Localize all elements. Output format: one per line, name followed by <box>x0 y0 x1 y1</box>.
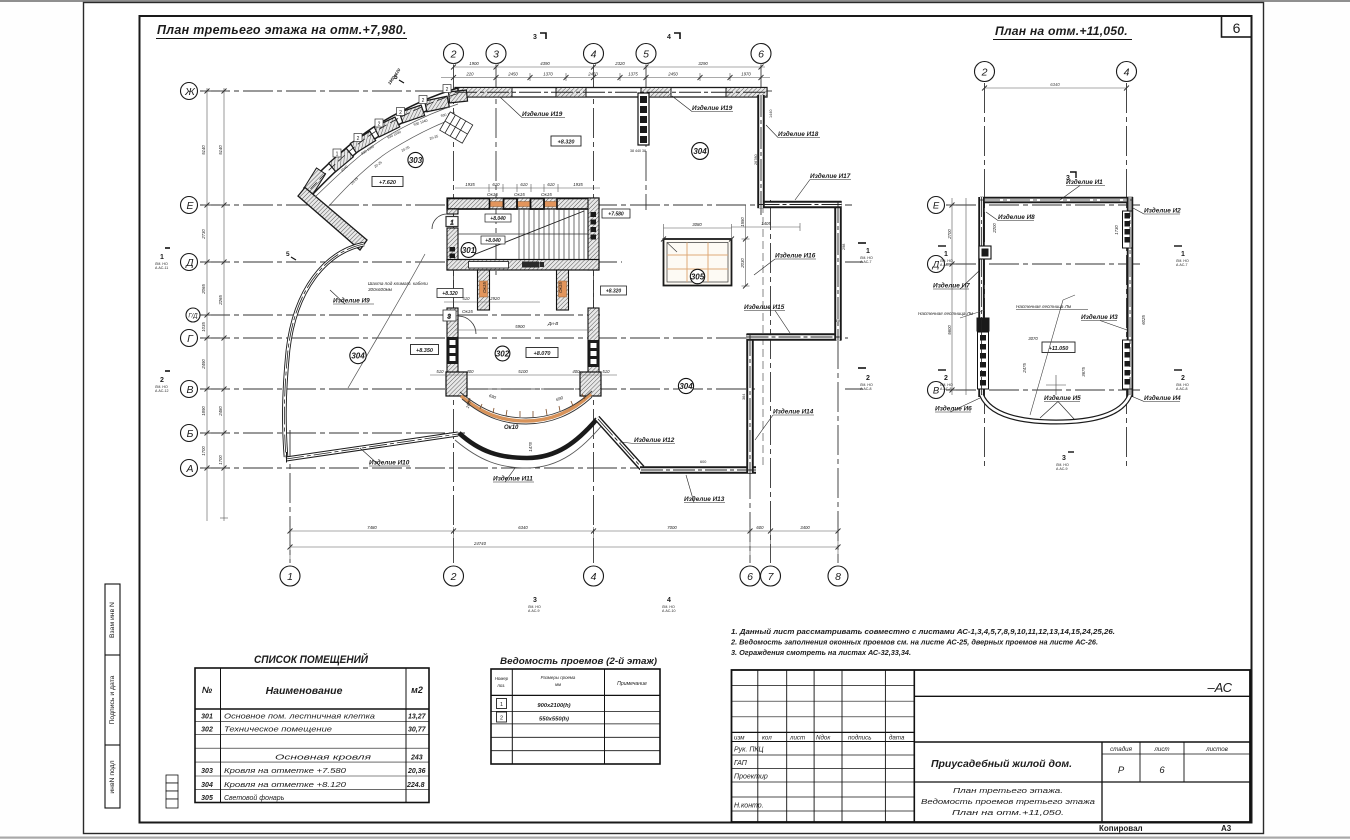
svg-text:900х2100(h): 900х2100(h) <box>537 703 570 709</box>
svg-text:6: 6 <box>758 49 764 61</box>
svg-text:Н.контр.: Н.контр. <box>734 803 764 810</box>
svg-text:3: 3 <box>533 34 537 41</box>
svg-text:1478: 1478 <box>528 442 533 452</box>
svg-text:400: 400 <box>572 369 580 374</box>
svg-text:400: 400 <box>466 369 474 374</box>
svg-text:+7.580: +7.580 <box>608 212 624 218</box>
svg-text:2: 2 <box>500 716 503 722</box>
svg-text:1: 1 <box>160 254 164 261</box>
svg-text:Проектир: Проектир <box>734 774 768 781</box>
svg-text:510: 510 <box>462 296 470 301</box>
svg-text:2: 2 <box>160 377 164 384</box>
svg-text:3: 3 <box>1066 175 1070 182</box>
svg-text:Д: Д <box>932 260 940 271</box>
svg-text:350: 350 <box>835 319 841 323</box>
svg-text:А: А <box>185 463 193 475</box>
svg-text:4: 4 <box>667 597 671 604</box>
svg-text:8: 8 <box>835 571 841 583</box>
svg-text:А АС-10: А АС-10 <box>662 609 676 613</box>
svg-text:1. Данный лист рассматривать с: 1. Данный лист рассматривать совместно с… <box>731 627 1115 636</box>
svg-text:1375: 1375 <box>628 72 638 77</box>
svg-text:1900: 1900 <box>469 61 479 66</box>
svg-text:298: 298 <box>842 244 846 250</box>
svg-text:2450: 2450 <box>507 72 518 77</box>
svg-text:1730: 1730 <box>1114 225 1119 235</box>
svg-text:5100: 5100 <box>518 369 528 374</box>
svg-text:600: 600 <box>756 525 764 530</box>
svg-text:1935: 1935 <box>573 182 583 187</box>
svg-text:Ок15: Ок15 <box>487 192 498 197</box>
svg-text:4: 4 <box>1124 67 1130 79</box>
svg-text:2475: 2475 <box>1022 363 1027 374</box>
svg-text:2480: 2480 <box>218 406 223 417</box>
svg-text:А3: А3 <box>1221 824 1232 833</box>
svg-text:3070: 3070 <box>1028 336 1038 341</box>
svg-text:А АС-8: А АС-8 <box>1176 387 1188 391</box>
svg-text:1700: 1700 <box>218 455 223 465</box>
svg-text:Настенная лестница Лм: Настенная лестница Лм <box>1016 304 1072 309</box>
svg-text:2: 2 <box>378 122 381 128</box>
svg-text:+8.320: +8.320 <box>558 140 575 146</box>
svg-text:Кровля на отметке +8.120: Кровля на отметке +8.120 <box>224 782 346 789</box>
svg-text:26780: 26780 <box>754 154 758 165</box>
svg-text:2: 2 <box>450 571 457 583</box>
svg-text:Изделие И8: Изделие И8 <box>998 213 1035 221</box>
svg-text:Кровля на отметке +7.580: Кровля на отметке +7.580 <box>224 768 346 775</box>
svg-text:План на отм.+11,050.: План на отм.+11,050. <box>952 808 1064 817</box>
svg-text:Основное пом. лестничная клетк: Основное пом. лестничная клетка <box>224 714 375 721</box>
svg-text:6340: 6340 <box>518 525 528 530</box>
svg-text:2065: 2065 <box>201 284 206 295</box>
svg-text:План третьего этажа на отм.+7,: План третьего этажа на отм.+7,980. <box>157 23 407 37</box>
svg-text:5: 5 <box>643 49 649 61</box>
svg-text:2: 2 <box>450 49 457 61</box>
svg-text:2490: 2490 <box>201 359 206 370</box>
svg-text:дата: дата <box>889 735 905 742</box>
svg-text:510: 510 <box>602 369 610 374</box>
svg-text:7000: 7000 <box>667 525 677 530</box>
svg-text:364: 364 <box>742 394 746 400</box>
svg-text:Изделие И4: Изделие И4 <box>1144 394 1181 402</box>
svg-text:листов: листов <box>1205 746 1229 753</box>
svg-text:Ведомость проемов (2-й этаж): Ведомость проемов (2-й этаж) <box>500 656 657 666</box>
svg-text:3675: 3675 <box>1081 367 1086 377</box>
svg-text:Ок15: Ок15 <box>514 192 525 197</box>
svg-text:6: 6 <box>1159 765 1165 776</box>
svg-text:2730: 2730 <box>201 229 206 240</box>
svg-text:Ок15: Ок15 <box>482 282 487 293</box>
svg-text:38 440 38: 38 440 38 <box>630 149 646 153</box>
svg-text:А АС-7: А АС-7 <box>1176 263 1188 267</box>
svg-text:304: 304 <box>693 147 707 156</box>
svg-text:5600: 5600 <box>947 325 952 335</box>
svg-text:Изделие И2: Изделие И2 <box>1144 207 1181 215</box>
svg-text:5: 5 <box>394 74 398 81</box>
svg-text:3080: 3080 <box>692 222 702 227</box>
svg-text:ГАП: ГАП <box>734 760 748 767</box>
svg-text:302: 302 <box>201 727 213 734</box>
svg-text:Ок15: Ок15 <box>541 192 552 197</box>
svg-text:2: 2 <box>446 87 449 93</box>
svg-text:1: 1 <box>1181 251 1185 258</box>
svg-text:1: 1 <box>500 702 503 708</box>
svg-text:Дн-В: Дн-В <box>547 321 558 326</box>
svg-text:Изделие И11: Изделие И11 <box>493 475 533 483</box>
svg-text:610: 610 <box>520 182 528 187</box>
svg-text:Номер: Номер <box>495 676 509 681</box>
svg-text:2700: 2700 <box>947 229 952 240</box>
svg-text:Основная кровля: Основная кровля <box>275 754 371 761</box>
svg-text:1890: 1890 <box>201 406 206 416</box>
svg-text:+8.070: +8.070 <box>534 351 551 357</box>
svg-text:А АС-9: А АС-9 <box>1056 467 1068 471</box>
svg-text:5140: 5140 <box>201 145 206 155</box>
svg-text:А АС-9: А АС-9 <box>528 609 540 613</box>
svg-text:4: 4 <box>591 571 597 583</box>
svg-text:2: 2 <box>1181 375 1185 382</box>
svg-text:550х550(h): 550х550(h) <box>539 717 569 723</box>
svg-text:3: 3 <box>493 49 499 61</box>
svg-text:600: 600 <box>700 460 706 464</box>
svg-text:2: 2 <box>944 375 948 382</box>
svg-text:510: 510 <box>436 369 444 374</box>
svg-text:+8.320: +8.320 <box>442 291 458 297</box>
svg-text:3290: 3290 <box>698 61 708 66</box>
svg-text:2265: 2265 <box>218 295 223 306</box>
svg-text:1405: 1405 <box>761 221 771 226</box>
svg-text:224.8: 224.8 <box>406 782 425 789</box>
svg-text:изм: изм <box>734 735 745 742</box>
svg-text:м2: м2 <box>411 685 423 695</box>
svg-text:4390: 4390 <box>540 61 550 66</box>
svg-text:Р: Р <box>1118 765 1125 776</box>
svg-text:+7.620: +7.620 <box>379 180 396 186</box>
svg-text:Примечание: Примечание <box>617 681 647 687</box>
svg-text:1970: 1970 <box>741 72 751 77</box>
svg-text:стадия: стадия <box>1110 746 1132 753</box>
svg-text:6: 6 <box>747 571 753 583</box>
svg-text:Изделие И19: Изделие И19 <box>522 110 563 118</box>
svg-text:3. Ограждения смотреть на лист: 3. Ограждения смотреть на листах АС-32,3… <box>731 648 911 657</box>
svg-text:2920: 2920 <box>489 296 500 301</box>
svg-text:6: 6 <box>1233 20 1241 36</box>
svg-text:2: 2 <box>981 67 988 79</box>
svg-text:300х600мм: 300х600мм <box>368 287 393 292</box>
svg-text:Наименование: Наименование <box>266 685 343 697</box>
svg-text:инвN подл: инвN подл <box>109 760 116 793</box>
svg-text:Изделие И1: Изделие И1 <box>1066 178 1103 186</box>
svg-text:Рук. ПКЦ: Рук. ПКЦ <box>734 747 764 754</box>
svg-text:+8.040: +8.040 <box>485 238 501 244</box>
svg-text:Ок15: Ок15 <box>462 309 473 314</box>
svg-text:Ведомость проемов третьего эта: Ведомость проемов третьего этажа <box>921 797 1095 806</box>
svg-text:Е: Е <box>186 200 194 212</box>
svg-text:Техническое помещение: Техническое помещение <box>224 727 332 734</box>
svg-text:2: 2 <box>422 98 425 104</box>
svg-text:20,36: 20,36 <box>407 768 426 775</box>
svg-text:Д: Д <box>185 257 194 269</box>
svg-text:Б: Б <box>187 428 194 440</box>
svg-text:1: 1 <box>450 221 453 227</box>
svg-text:243: 243 <box>410 754 423 761</box>
svg-text:Изделие И12: Изделие И12 <box>634 436 675 444</box>
svg-text:Изделие И14: Изделие И14 <box>773 408 814 416</box>
svg-text:Изделие И15: Изделие И15 <box>744 303 785 311</box>
svg-text:Е: Е <box>933 201 940 212</box>
svg-text:А АС-12: А АС-12 <box>155 389 169 393</box>
svg-text:Изделие И7: Изделие И7 <box>933 282 970 290</box>
svg-text:–АС: –АС <box>1206 680 1232 695</box>
svg-text:5: 5 <box>286 251 290 258</box>
svg-text:План третьего этажа.: План третьего этажа. <box>953 786 1063 795</box>
svg-text:305: 305 <box>201 795 213 802</box>
svg-text:24740: 24740 <box>473 541 487 546</box>
svg-text:лист: лист <box>789 735 805 742</box>
svg-text:1035: 1035 <box>201 322 206 332</box>
svg-text:301: 301 <box>201 714 213 721</box>
svg-text:Взам инв N: Взам инв N <box>109 602 116 638</box>
svg-text:304: 304 <box>351 352 365 361</box>
svg-text:5900: 5900 <box>515 324 525 329</box>
svg-text:3: 3 <box>533 597 537 604</box>
svg-text:Ж: Ж <box>184 86 196 98</box>
svg-text:305: 305 <box>691 273 705 282</box>
svg-text:3: 3 <box>1062 455 1066 462</box>
svg-text:+8.350: +8.350 <box>416 348 433 354</box>
svg-text:1440: 1440 <box>769 110 773 118</box>
svg-text:304: 304 <box>201 782 213 789</box>
svg-text:6340: 6340 <box>1050 82 1060 87</box>
svg-text:мм: мм <box>555 682 561 687</box>
svg-text:Изделие И6: Изделие И6 <box>935 405 972 413</box>
svg-text:+8.040: +8.040 <box>490 216 506 222</box>
svg-text:2: 2 <box>357 136 360 142</box>
svg-text:+8.320: +8.320 <box>606 289 622 295</box>
svg-text:1: 1 <box>336 152 339 158</box>
svg-text:Изделие И17: Изделие И17 <box>810 172 851 180</box>
svg-text:Изделие И19: Изделие И19 <box>692 104 733 112</box>
svg-text:13,27: 13,27 <box>408 714 427 721</box>
svg-text:Г/Д: Г/Д <box>188 314 198 320</box>
svg-text:303: 303 <box>201 768 213 775</box>
svg-text:кол: кол <box>762 735 772 742</box>
svg-text:№: № <box>202 685 213 695</box>
svg-text:Ок15: Ок15 <box>558 282 563 293</box>
svg-text:610: 610 <box>492 182 500 187</box>
svg-text:1: 1 <box>944 251 948 258</box>
svg-text:2450: 2450 <box>667 72 678 77</box>
svg-text:1: 1 <box>866 248 870 255</box>
svg-text:2320: 2320 <box>614 61 625 66</box>
svg-text:4: 4 <box>591 49 597 61</box>
svg-text:подпись: подпись <box>848 735 871 742</box>
svg-text:Копировал: Копировал <box>1099 824 1143 833</box>
svg-text:План на отм.+11,050.: План на отм.+11,050. <box>995 24 1128 38</box>
svg-text:Размеры проема: Размеры проема <box>541 675 576 680</box>
svg-text:Настенная лестница Лм: Настенная лестница Лм <box>918 311 974 316</box>
svg-text:220: 220 <box>465 72 474 77</box>
svg-text:1370: 1370 <box>543 72 553 77</box>
svg-text:А АС-11: А АС-11 <box>155 266 168 270</box>
svg-text:А АС-8: А АС-8 <box>940 387 952 391</box>
svg-text:2: 2 <box>399 110 402 116</box>
svg-text:Изделие И16: Изделие И16 <box>775 252 816 260</box>
svg-text:5140: 5140 <box>218 145 223 155</box>
svg-text:СПИСОК ПОМЕЩЕНИЙ: СПИСОК ПОМЕЩЕНИЙ <box>254 653 368 666</box>
svg-text:30,77: 30,77 <box>408 727 427 734</box>
svg-text:2. Ведомость заполнения оконны: 2. Ведомость заполнения оконных проемов … <box>730 638 1098 647</box>
svg-text:лист: лист <box>1153 746 1169 753</box>
svg-text:301: 301 <box>462 246 476 255</box>
svg-text:Изделие И10: Изделие И10 <box>369 459 410 467</box>
svg-text:В: В <box>933 386 940 397</box>
svg-text:Nдок: Nдок <box>816 735 831 742</box>
svg-text:+11.050: +11.050 <box>1049 346 1069 352</box>
svg-text:302: 302 <box>496 350 510 359</box>
svg-text:1550: 1550 <box>740 217 745 227</box>
svg-text:2200: 2200 <box>992 223 997 234</box>
svg-text:2030: 2030 <box>740 258 745 269</box>
svg-text:В: В <box>186 384 193 396</box>
svg-text:304: 304 <box>679 382 693 391</box>
svg-text:610: 610 <box>547 182 555 187</box>
svg-text:Световой фонарь: Световой фонарь <box>224 794 285 802</box>
svg-text:7480: 7480 <box>367 525 377 530</box>
svg-text:А АС-8: А АС-8 <box>860 387 872 391</box>
svg-text:1700: 1700 <box>201 446 206 456</box>
svg-text:Приусадебный жилой дом.: Приусадебный жилой дом. <box>931 758 1072 770</box>
svg-text:6025: 6025 <box>1141 315 1146 325</box>
svg-text:Изделие И5: Изделие И5 <box>1044 394 1081 402</box>
svg-text:3400: 3400 <box>800 525 810 530</box>
svg-text:Изделие И13: Изделие И13 <box>684 495 725 503</box>
svg-text:4: 4 <box>667 34 671 41</box>
svg-text:А АС-7: А АС-7 <box>860 260 872 264</box>
svg-text:Ок10: Ок10 <box>504 425 519 431</box>
svg-text:2450: 2450 <box>587 72 598 77</box>
svg-text:Изделие И18: Изделие И18 <box>778 130 819 138</box>
svg-text:Подпись и дата: Подпись и дата <box>109 675 116 724</box>
svg-text:Изделие И3: Изделие И3 <box>1081 313 1118 321</box>
svg-text:1: 1 <box>287 571 293 583</box>
svg-text:Шахта под климат. кабели: Шахта под климат. кабели <box>368 281 428 286</box>
svg-text:303: 303 <box>409 156 423 165</box>
svg-text:1935: 1935 <box>465 182 475 187</box>
svg-text:поз.: поз. <box>497 683 505 688</box>
svg-text:2: 2 <box>866 375 870 382</box>
